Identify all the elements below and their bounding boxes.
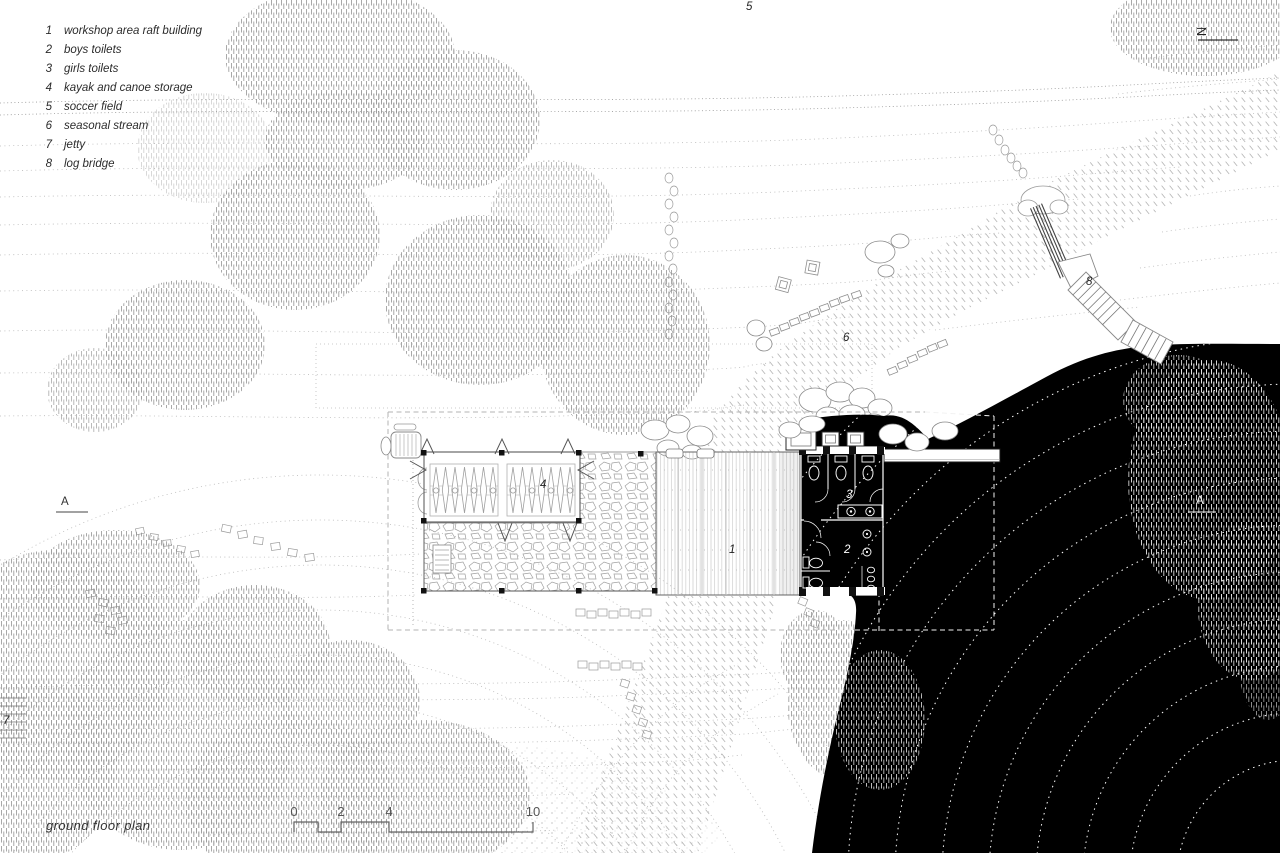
legend-item-label: seasonal stream: [64, 120, 148, 132]
deck-bench: [697, 449, 714, 458]
plan-label-log-bridge: 8: [1086, 276, 1092, 288]
legend-item-label: jetty: [64, 139, 85, 151]
legend-item-label: log bridge: [64, 158, 115, 170]
plan-label-jetty: 7: [3, 715, 9, 727]
legend-item-number: 2: [38, 44, 52, 56]
square-pavers: [775, 260, 820, 293]
steps-grate: [433, 545, 451, 573]
legend-item: 7jetty: [38, 135, 202, 154]
scale-tick-10: 10: [526, 804, 540, 819]
legend-item-label: boys toilets: [64, 44, 122, 56]
plan-label-stream: 6: [843, 332, 849, 344]
legend-item-label: kayak and canoe storage: [64, 82, 193, 94]
legend-item-number: 6: [38, 120, 52, 132]
legend-item-number: 1: [38, 25, 52, 37]
scale-tick-0: 0: [290, 804, 297, 819]
plan-label-soccer-field: 5: [746, 1, 752, 13]
legend-item: 6seasonal stream: [38, 116, 202, 135]
pebble-chain-northeast: [989, 125, 1027, 178]
plan-label-girls-toilets: 3: [846, 489, 852, 501]
section-marker-a-left: A: [61, 496, 69, 508]
plan-label-kayak-storage: 4: [540, 479, 546, 491]
scale-tick-2: 2: [337, 804, 344, 819]
deck-bench: [666, 449, 683, 458]
legend-item-label: soccer field: [64, 101, 122, 113]
steps-upper: [1068, 272, 1136, 340]
section-marker-a-right: A: [1196, 495, 1204, 507]
legend-item-label: workshop area raft building: [64, 25, 202, 37]
plan-label-workshop: 1: [729, 544, 735, 556]
scale-tick-4: 4: [385, 804, 392, 819]
legend-item: 3girls toilets: [38, 60, 202, 79]
legend-item: 1workshop area raft building: [38, 22, 202, 41]
dock-fixture: [381, 424, 421, 458]
legend-item: 2boys toilets: [38, 41, 202, 60]
drawing-title: ground floor plan: [46, 818, 150, 833]
north-indicator: N: [1194, 27, 1209, 36]
plan-label-boys-toilets: 2: [844, 544, 850, 556]
lakeside-deck-bar: [884, 449, 1000, 462]
legend-item-number: 7: [38, 139, 52, 151]
legend-item-number: 8: [38, 158, 52, 170]
legend-item: 5soccer field: [38, 98, 202, 117]
legend: 1workshop area raft building 2boys toile…: [38, 22, 202, 173]
legend-item: 8log bridge: [38, 154, 202, 173]
legend-item-number: 5: [38, 101, 52, 113]
legend-item-label: girls toilets: [64, 63, 118, 75]
legend-item-number: 4: [38, 82, 52, 94]
ground-floor-plan-drawing: 1workshop area raft building 2boys toile…: [0, 0, 1280, 853]
legend-item-number: 3: [38, 63, 52, 75]
legend-item: 4kayak and canoe storage: [38, 79, 202, 98]
